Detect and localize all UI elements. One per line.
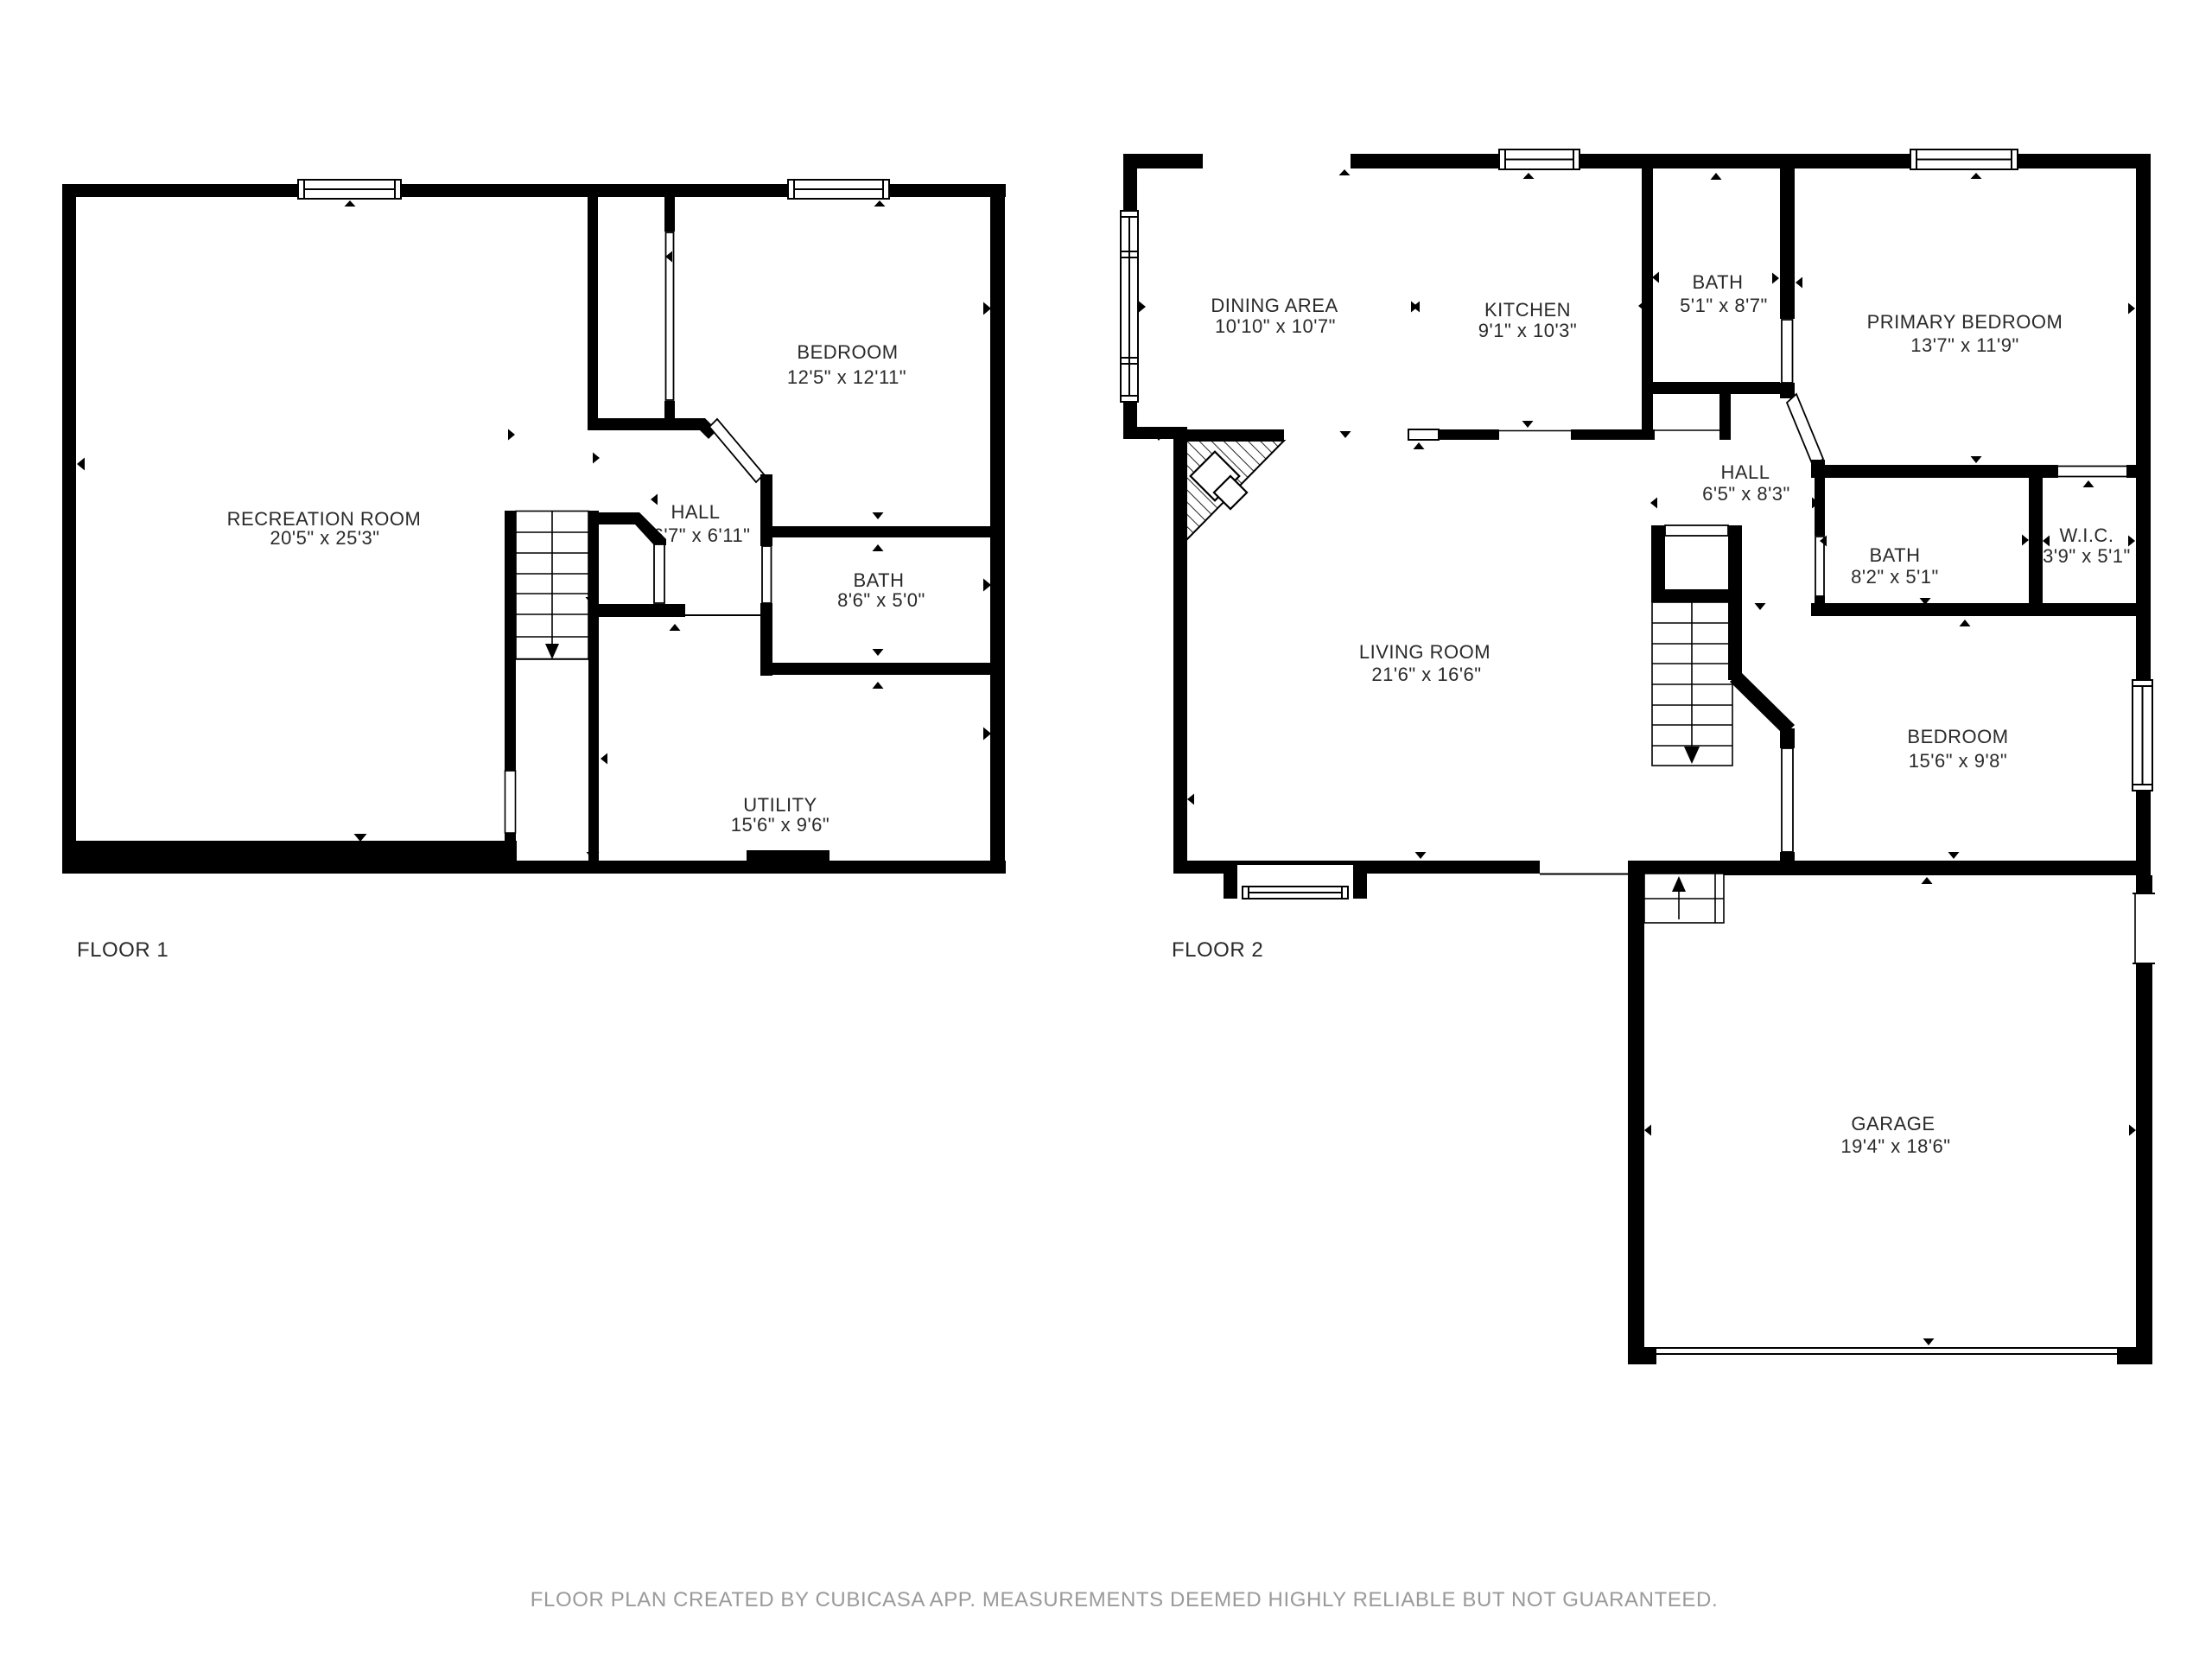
svg-text:BEDROOM: BEDROOM <box>1907 726 2008 747</box>
svg-text:3'9" x 5'1": 3'9" x 5'1" <box>2043 545 2131 567</box>
svg-text:W.I.C.: W.I.C. <box>2060 524 2114 546</box>
svg-text:8'6" x 5'0": 8'6" x 5'0" <box>837 589 925 611</box>
svg-text:BATH: BATH <box>853 569 904 591</box>
svg-text:FLOOR 1: FLOOR 1 <box>77 938 168 962</box>
svg-text:UTILITY: UTILITY <box>743 794 817 816</box>
svg-text:HALL: HALL <box>1720 461 1770 483</box>
svg-text:KITCHEN: KITCHEN <box>1484 299 1571 321</box>
svg-text:15'6" x 9'8": 15'6" x 9'8" <box>1909 750 2007 772</box>
svg-text:8'2" x 5'1": 8'2" x 5'1" <box>1851 566 1939 588</box>
svg-text:9'1" x 10'3": 9'1" x 10'3" <box>1478 320 1577 341</box>
svg-text:HALL: HALL <box>671 501 720 523</box>
svg-text:GARAGE: GARAGE <box>1851 1113 1935 1135</box>
svg-text:PRIMARY BEDROOM: PRIMARY BEDROOM <box>1867 311 2063 333</box>
svg-text:6'5" x 8'3": 6'5" x 8'3" <box>1702 483 1790 505</box>
svg-text:15'6" x 9'6": 15'6" x 9'6" <box>731 814 829 836</box>
svg-text:5'1" x 8'7": 5'1" x 8'7" <box>1680 295 1768 316</box>
svg-text:BATH: BATH <box>1692 271 1743 293</box>
svg-text:19'4" x 18'6": 19'4" x 18'6" <box>1840 1135 1950 1157</box>
svg-text:6'7" x 6'11": 6'7" x 6'11" <box>653 524 751 546</box>
svg-text:21'6" x 16'6": 21'6" x 16'6" <box>1371 664 1481 685</box>
svg-text:FLOOR PLAN CREATED BY CUBICASA: FLOOR PLAN CREATED BY CUBICASA APP. MEAS… <box>531 1588 1719 1611</box>
svg-text:DINING AREA: DINING AREA <box>1211 295 1338 316</box>
svg-text:13'7" x 11'9": 13'7" x 11'9" <box>1910 334 2019 356</box>
svg-text:BATH: BATH <box>1869 544 1920 566</box>
svg-text:10'10" x 10'7": 10'10" x 10'7" <box>1215 315 1336 337</box>
svg-text:FLOOR 2: FLOOR 2 <box>1172 938 1263 962</box>
svg-text:BEDROOM: BEDROOM <box>797 341 898 363</box>
svg-text:LIVING ROOM: LIVING ROOM <box>1359 641 1491 663</box>
svg-text:12'5" x 12'11": 12'5" x 12'11" <box>787 366 906 388</box>
svg-text:20'5" x 25'3": 20'5" x 25'3" <box>270 527 379 549</box>
